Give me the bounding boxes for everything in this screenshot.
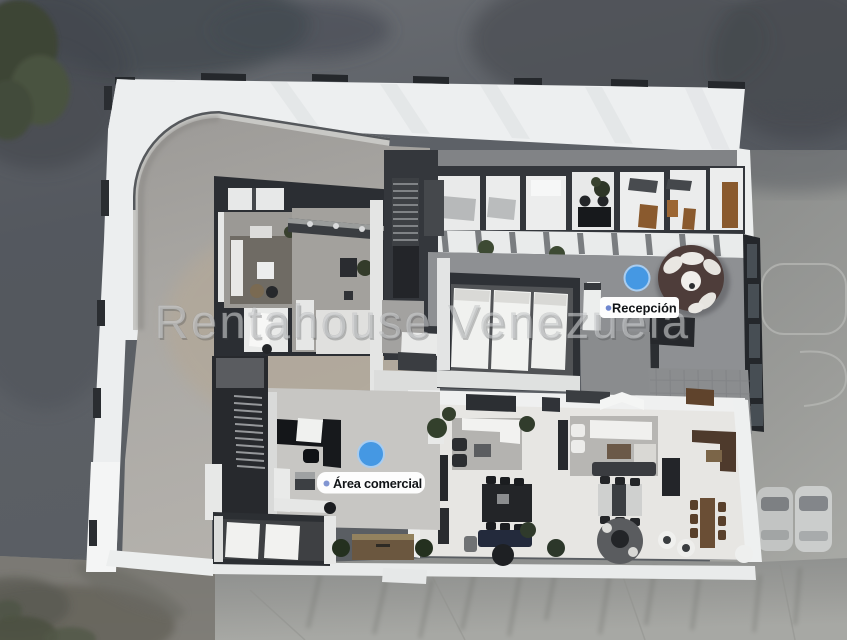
svg-text:Área comercial: Área comercial: [333, 476, 422, 491]
svg-text:Recepción: Recepción: [612, 301, 677, 316]
